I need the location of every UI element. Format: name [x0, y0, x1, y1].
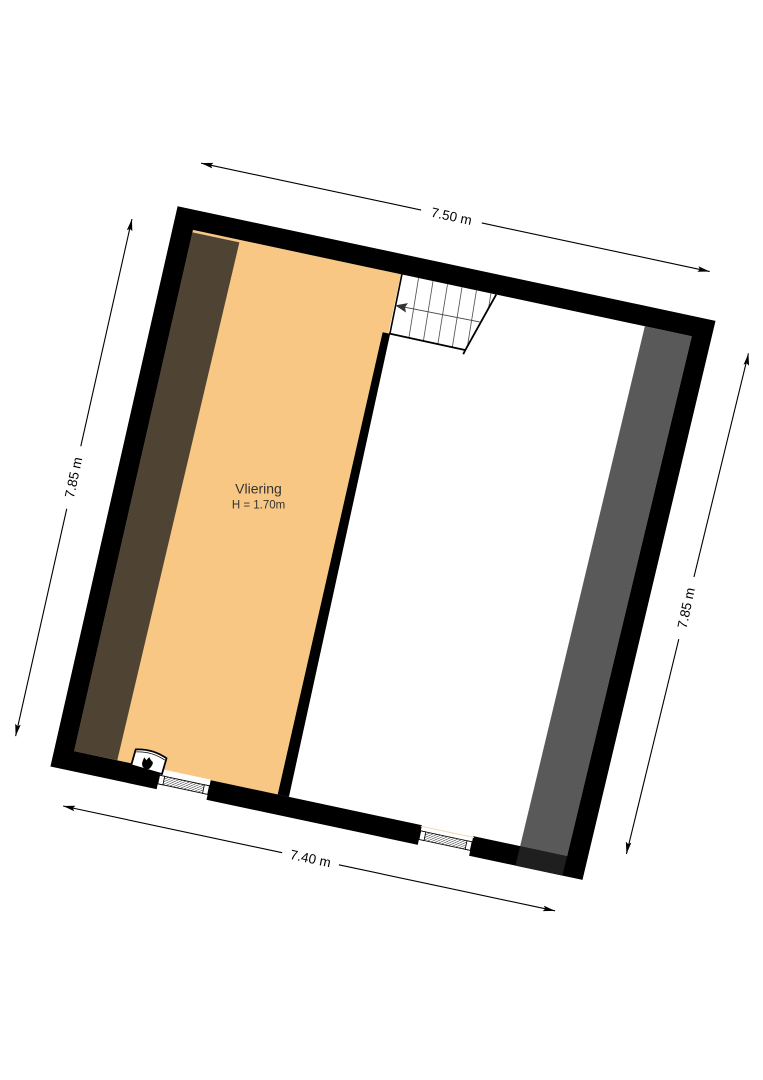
svg-text:Vliering: Vliering: [235, 481, 282, 497]
svg-text:H = 1.70m: H = 1.70m: [232, 499, 285, 511]
